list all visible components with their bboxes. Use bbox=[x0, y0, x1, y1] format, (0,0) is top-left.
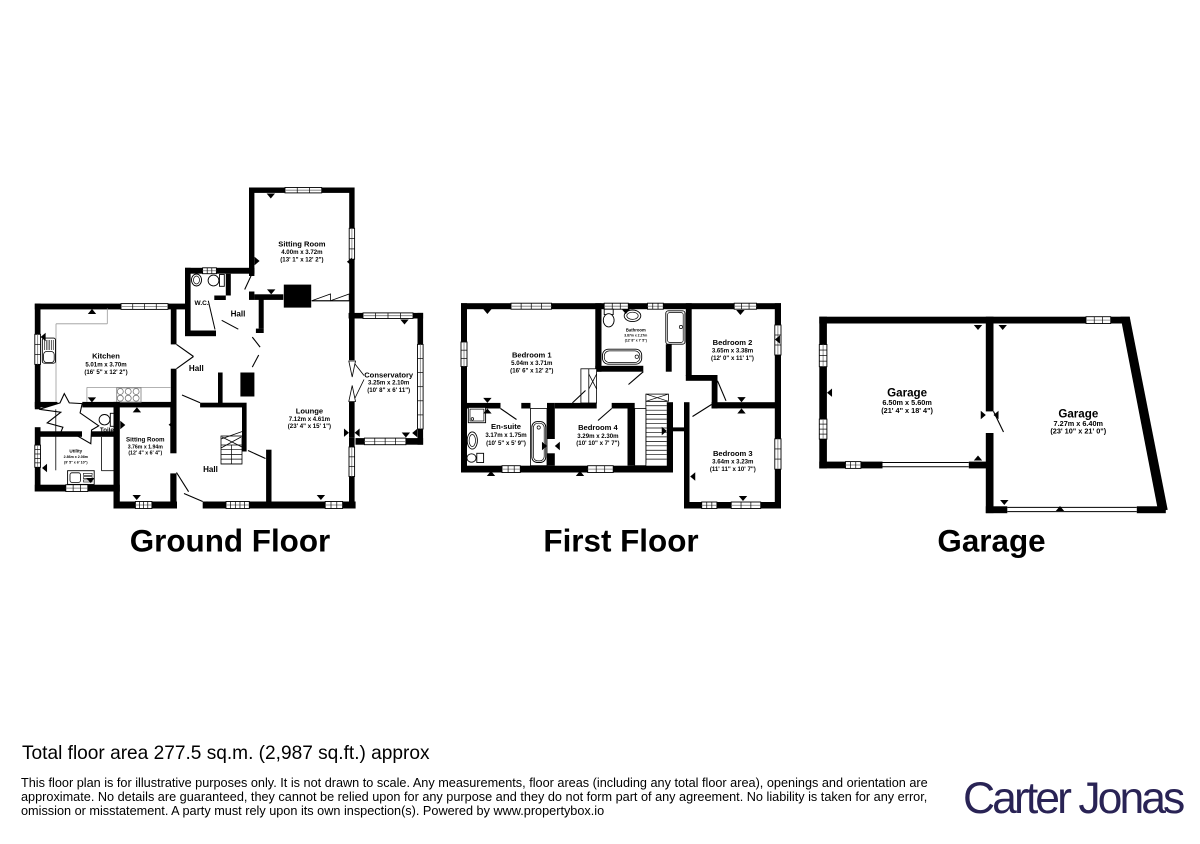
svg-text:Kitchen: Kitchen bbox=[92, 352, 120, 361]
svg-text:(12' 0" x 11' 1"): (12' 0" x 11' 1") bbox=[711, 355, 754, 362]
svg-text:Ground Floor: Ground Floor bbox=[130, 524, 331, 559]
svg-text:Bathroom: Bathroom bbox=[626, 328, 646, 333]
svg-text:(16' 5" x 12' 2"): (16' 5" x 12' 2") bbox=[84, 369, 127, 376]
svg-text:Bedroom 1: Bedroom 1 bbox=[512, 351, 552, 360]
svg-text:Lounge: Lounge bbox=[296, 407, 323, 416]
svg-text:Bedroom 4: Bedroom 4 bbox=[578, 423, 618, 432]
svg-text:2.86m x 2.08m: 2.86m x 2.08m bbox=[64, 455, 88, 459]
svg-text:3.76m x 1.94m: 3.76m x 1.94m bbox=[128, 444, 164, 450]
svg-text:First Floor: First Floor bbox=[543, 524, 698, 559]
svg-text:Sitting Room: Sitting Room bbox=[278, 240, 325, 249]
svg-text:(23' 4" x 15' 1"): (23' 4" x 15' 1") bbox=[288, 423, 331, 430]
svg-text:Conservatory: Conservatory bbox=[364, 370, 414, 379]
svg-text:3.87m x 2.27m: 3.87m x 2.27m bbox=[624, 334, 647, 338]
svg-text:En-suite: En-suite bbox=[491, 422, 521, 431]
svg-text:(11' 11" x 10' 7"): (11' 11" x 10' 7") bbox=[710, 466, 756, 473]
svg-text:Hall: Hall bbox=[203, 465, 218, 474]
svg-text:3.29m x 2.30m: 3.29m x 2.30m bbox=[577, 433, 619, 440]
svg-text:(10' 8" x 6' 11"): (10' 8" x 6' 11") bbox=[367, 387, 410, 394]
svg-text:(16' 6" x 12' 2"): (16' 6" x 12' 2") bbox=[510, 367, 553, 374]
svg-text:(21' 4" x 18' 4"): (21' 4" x 18' 4") bbox=[881, 406, 933, 415]
svg-text:(9' 5" x 6' 10"): (9' 5" x 6' 10") bbox=[64, 460, 88, 464]
svg-text:3.64m x 3.23m: 3.64m x 3.23m bbox=[712, 459, 754, 466]
svg-text:W.C.: W.C. bbox=[195, 300, 209, 307]
svg-text:(10' 10" x 7' 7"): (10' 10" x 7' 7") bbox=[576, 440, 619, 447]
svg-text:5.04m x 3.71m: 5.04m x 3.71m bbox=[511, 360, 553, 367]
svg-text:7.12m x 4.61m: 7.12m x 4.61m bbox=[289, 416, 331, 423]
svg-text:3.17m x 1.75m: 3.17m x 1.75m bbox=[485, 432, 527, 439]
svg-text:5.01m x 3.70m: 5.01m x 3.70m bbox=[85, 361, 127, 368]
svg-text:Bedroom 3: Bedroom 3 bbox=[713, 449, 753, 458]
svg-text:(10' 5" x 5' 9"): (10' 5" x 5' 9") bbox=[486, 440, 526, 447]
svg-text:(12' 4" x 6' 4"): (12' 4" x 6' 4") bbox=[128, 451, 162, 457]
svg-text:Bedroom 2: Bedroom 2 bbox=[713, 338, 753, 347]
svg-text:(13' 1" x 12' 2"): (13' 1" x 12' 2") bbox=[280, 256, 323, 263]
svg-text:4.00m x 3.72m: 4.00m x 3.72m bbox=[281, 249, 323, 256]
svg-text:(23' 10" x 21' 0"): (23' 10" x 21' 0") bbox=[1050, 427, 1106, 436]
svg-text:(12' 8" x 7' 5"): (12' 8" x 7' 5") bbox=[625, 339, 647, 343]
svg-text:Garage: Garage bbox=[937, 524, 1045, 559]
svg-text:3.25m x 2.10m: 3.25m x 2.10m bbox=[368, 380, 410, 387]
svg-text:3.65m x 3.38m: 3.65m x 3.38m bbox=[712, 348, 754, 355]
svg-text:Sitting Room: Sitting Room bbox=[126, 437, 165, 444]
svg-text:Utility: Utility bbox=[69, 449, 82, 454]
svg-text:Hall: Hall bbox=[189, 364, 204, 373]
svg-text:Hall: Hall bbox=[231, 310, 246, 319]
